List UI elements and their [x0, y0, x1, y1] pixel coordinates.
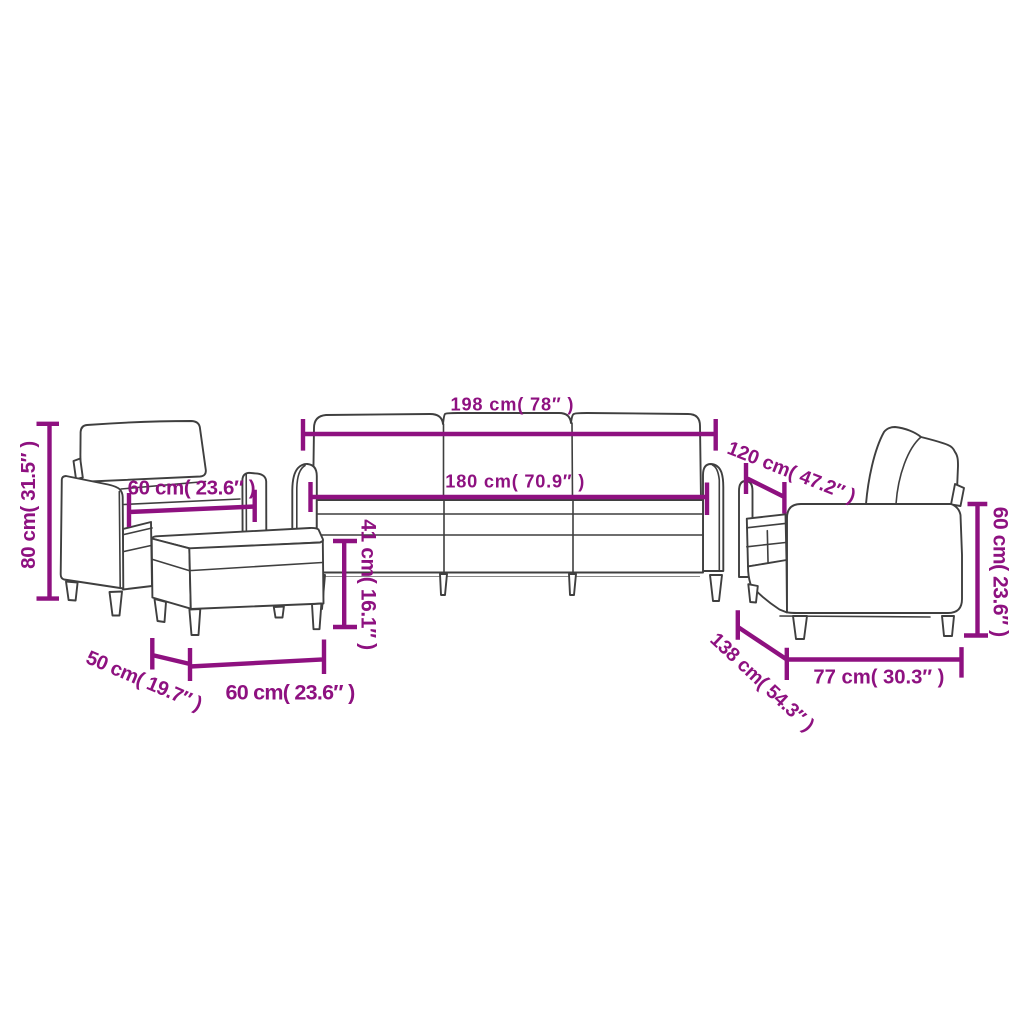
svg-text:60 cm( 23.6″ ): 60 cm( 23.6″ )	[226, 681, 356, 705]
svg-text:77 cm( 30.3″ ): 77 cm( 30.3″ )	[813, 666, 944, 688]
svg-text:41 cm( 16.1″ ): 41 cm( 16.1″ )	[357, 519, 380, 650]
svg-text:60 cm( 23.6″ ): 60 cm( 23.6″ )	[989, 507, 1012, 637]
svg-text:180 cm( 70.9″ ): 180 cm( 70.9″ )	[445, 471, 585, 491]
svg-text:60 cm( 23.6″ ): 60 cm( 23.6″ )	[128, 477, 256, 500]
svg-text:80 cm( 31.5″ ): 80 cm( 31.5″ )	[17, 441, 40, 569]
svg-text:198 cm( 78″ ): 198 cm( 78″ )	[451, 395, 575, 415]
